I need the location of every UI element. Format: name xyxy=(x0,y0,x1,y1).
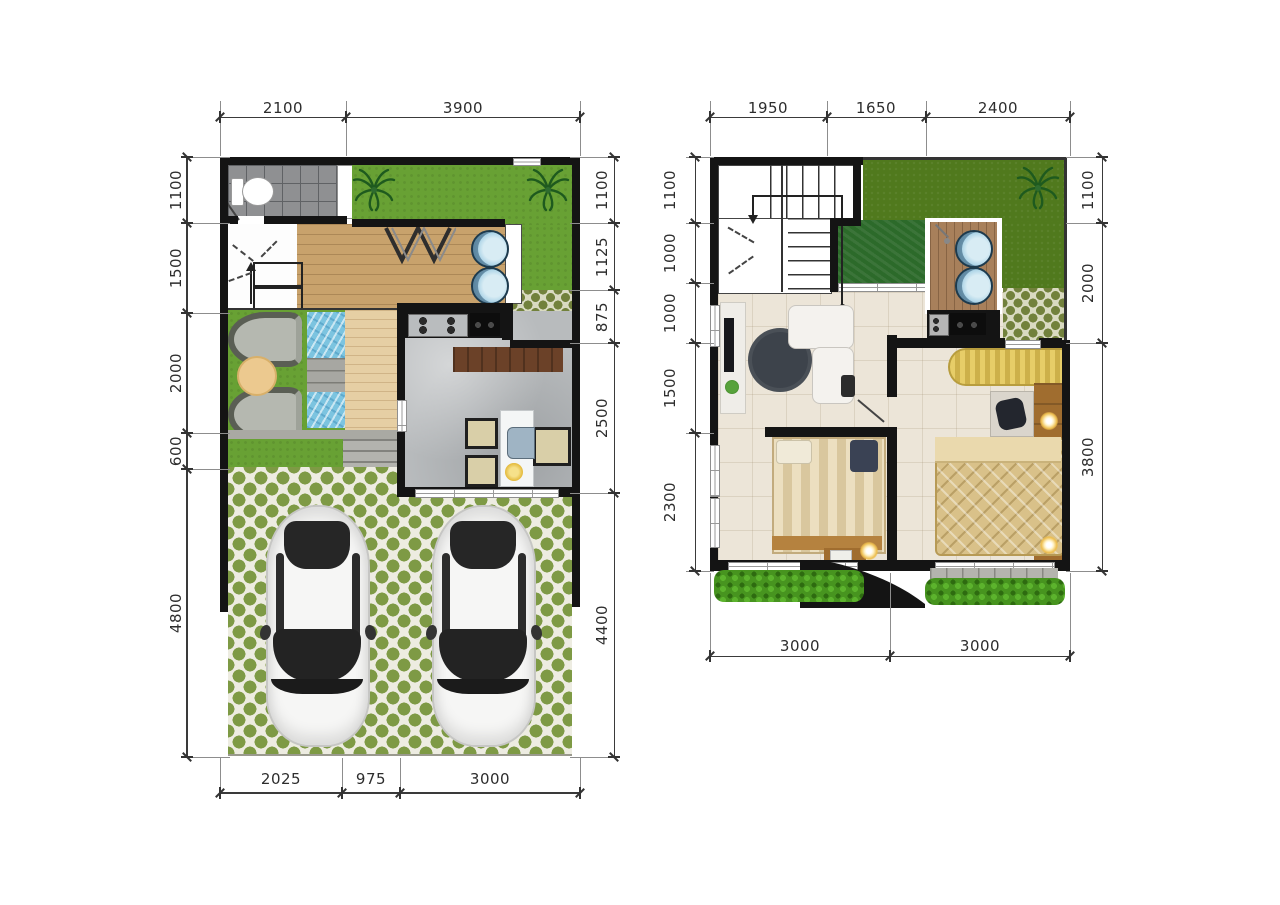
zigzag-partition-icon xyxy=(384,224,456,264)
front-grass-strip xyxy=(228,439,343,467)
bed-sheet-fold xyxy=(935,437,1061,463)
kitchen-wall xyxy=(502,303,513,340)
dim-label: 4800 xyxy=(167,588,185,638)
high-chair xyxy=(507,427,535,459)
stair-arrow-line xyxy=(752,195,754,217)
void-window xyxy=(838,283,929,292)
dim-label: 1000 xyxy=(661,228,679,278)
entry-direction-arrow xyxy=(250,270,252,304)
dim-label: 3900 xyxy=(438,99,488,117)
palm-tree-icon xyxy=(352,168,396,212)
bedroom-window xyxy=(1005,340,1041,349)
stair-arrow-line xyxy=(752,195,843,197)
plant-pot xyxy=(725,380,739,394)
side-window xyxy=(710,445,720,497)
garden-edge-line xyxy=(228,308,398,310)
bath-stool xyxy=(955,267,993,305)
sofa xyxy=(788,305,854,349)
kitchen-sink-icon xyxy=(470,313,500,336)
living-front-window xyxy=(415,489,559,498)
living-wall xyxy=(397,430,405,490)
dim-label: 975 xyxy=(346,770,396,788)
stair-arrow-line xyxy=(841,196,843,306)
wood-walkway xyxy=(345,310,397,432)
bathroom-wall xyxy=(264,216,347,224)
terrace-steps xyxy=(343,439,397,467)
car-icon xyxy=(266,505,370,747)
roof-paver-patch xyxy=(1003,288,1067,340)
deck-chair xyxy=(471,230,509,268)
dim-label: 3000 xyxy=(955,637,1005,655)
dim-label: 1650 xyxy=(851,99,901,117)
exterior-wall xyxy=(220,157,228,612)
palm-tree-icon xyxy=(526,168,570,212)
kitchen-wall xyxy=(397,303,510,311)
garden-path xyxy=(228,430,398,439)
shower-head-dot xyxy=(944,238,950,244)
dim-label: 3800 xyxy=(1079,432,1097,482)
dim-label: 1500 xyxy=(167,243,185,293)
stair-treads xyxy=(788,218,830,292)
dim-label: 2025 xyxy=(256,770,306,788)
side-window xyxy=(710,305,720,347)
dim-label: 1950 xyxy=(743,99,793,117)
parapet-line xyxy=(863,157,1067,160)
entry-arrowhead xyxy=(246,262,256,271)
desk-chair xyxy=(994,396,1028,431)
dim-label: 1500 xyxy=(661,363,679,413)
stair-wall xyxy=(853,157,861,226)
living-side-window xyxy=(397,400,407,432)
shrub-row xyxy=(714,570,864,602)
dim-label: 3000 xyxy=(465,770,515,788)
dim-label: 3000 xyxy=(775,637,825,655)
car-icon xyxy=(432,505,536,747)
dim-label: 1100 xyxy=(1079,165,1097,215)
parapet-line xyxy=(1064,157,1067,342)
side-table xyxy=(841,375,855,397)
dim-label: 1125 xyxy=(593,232,611,282)
bedroom-divider-wall xyxy=(887,335,897,397)
lamp-glow xyxy=(860,542,878,560)
green-void-patch xyxy=(838,220,927,283)
dim-label: 875 xyxy=(593,292,611,342)
stair-arrowhead xyxy=(748,215,758,224)
dim-label: 1100 xyxy=(661,165,679,215)
stair-rail-line xyxy=(781,165,783,292)
right-bedroom-wall xyxy=(897,338,1005,348)
living-wall xyxy=(510,340,572,348)
fish-pond xyxy=(307,392,345,428)
dim-label: 1100 xyxy=(593,165,611,215)
fish-pond xyxy=(307,312,345,358)
rear-garden-lawn-side xyxy=(520,225,572,290)
kitchen-bar-cabinet xyxy=(453,347,563,372)
rear-wall-window xyxy=(513,158,541,166)
dining-chair xyxy=(465,455,498,487)
toilet-bowl xyxy=(242,177,274,206)
dim-label: 2300 xyxy=(661,477,679,527)
right-bedroom-wall xyxy=(1039,338,1062,348)
dim-label: 2400 xyxy=(973,99,1023,117)
dining-chair xyxy=(465,418,498,449)
floor-vase xyxy=(505,463,523,481)
living-wall xyxy=(397,303,405,400)
exterior-wall xyxy=(710,157,863,165)
wardrobe xyxy=(948,348,1064,386)
dark-pillow xyxy=(850,440,878,472)
lamp-glow xyxy=(1040,536,1058,554)
dining-chair xyxy=(533,427,571,466)
dim-label: 2100 xyxy=(258,99,308,117)
bedroom-divider-wall xyxy=(887,427,897,560)
tv-icon xyxy=(724,318,734,372)
deck-wall xyxy=(352,219,505,227)
stove-icon xyxy=(408,314,468,337)
stepping-stones xyxy=(307,358,345,392)
lamp-glow xyxy=(1040,412,1058,430)
garden-table xyxy=(237,356,277,396)
floor-plan-sheet: 2100 3900 2025 975 3000 1100 1500 xyxy=(0,0,1280,905)
pillow xyxy=(776,440,812,464)
left-bedroom-wall xyxy=(765,427,897,437)
palm-tree-icon xyxy=(1016,166,1060,210)
side-window xyxy=(710,498,720,548)
stair-wall xyxy=(830,218,861,226)
exterior-wall xyxy=(572,157,580,607)
dim-label: 600 xyxy=(167,426,185,476)
shrub-row xyxy=(925,578,1065,605)
deck-chair xyxy=(471,267,509,305)
stove-icon xyxy=(929,314,949,336)
dim-label: 1000 xyxy=(661,288,679,338)
dim-label: 4400 xyxy=(593,600,611,650)
dim-label: 2000 xyxy=(167,348,185,398)
dim-label: 1100 xyxy=(167,165,185,215)
stair-wall xyxy=(830,218,838,292)
driveway-edge-line xyxy=(228,754,572,756)
roof-garden-lawn-side xyxy=(997,222,1067,288)
dim-label: 2000 xyxy=(1079,258,1097,308)
dim-label: 2500 xyxy=(593,393,611,443)
exterior-wall xyxy=(1062,340,1070,571)
bath-stool xyxy=(955,230,993,268)
pantry-sink-icon xyxy=(950,313,986,335)
